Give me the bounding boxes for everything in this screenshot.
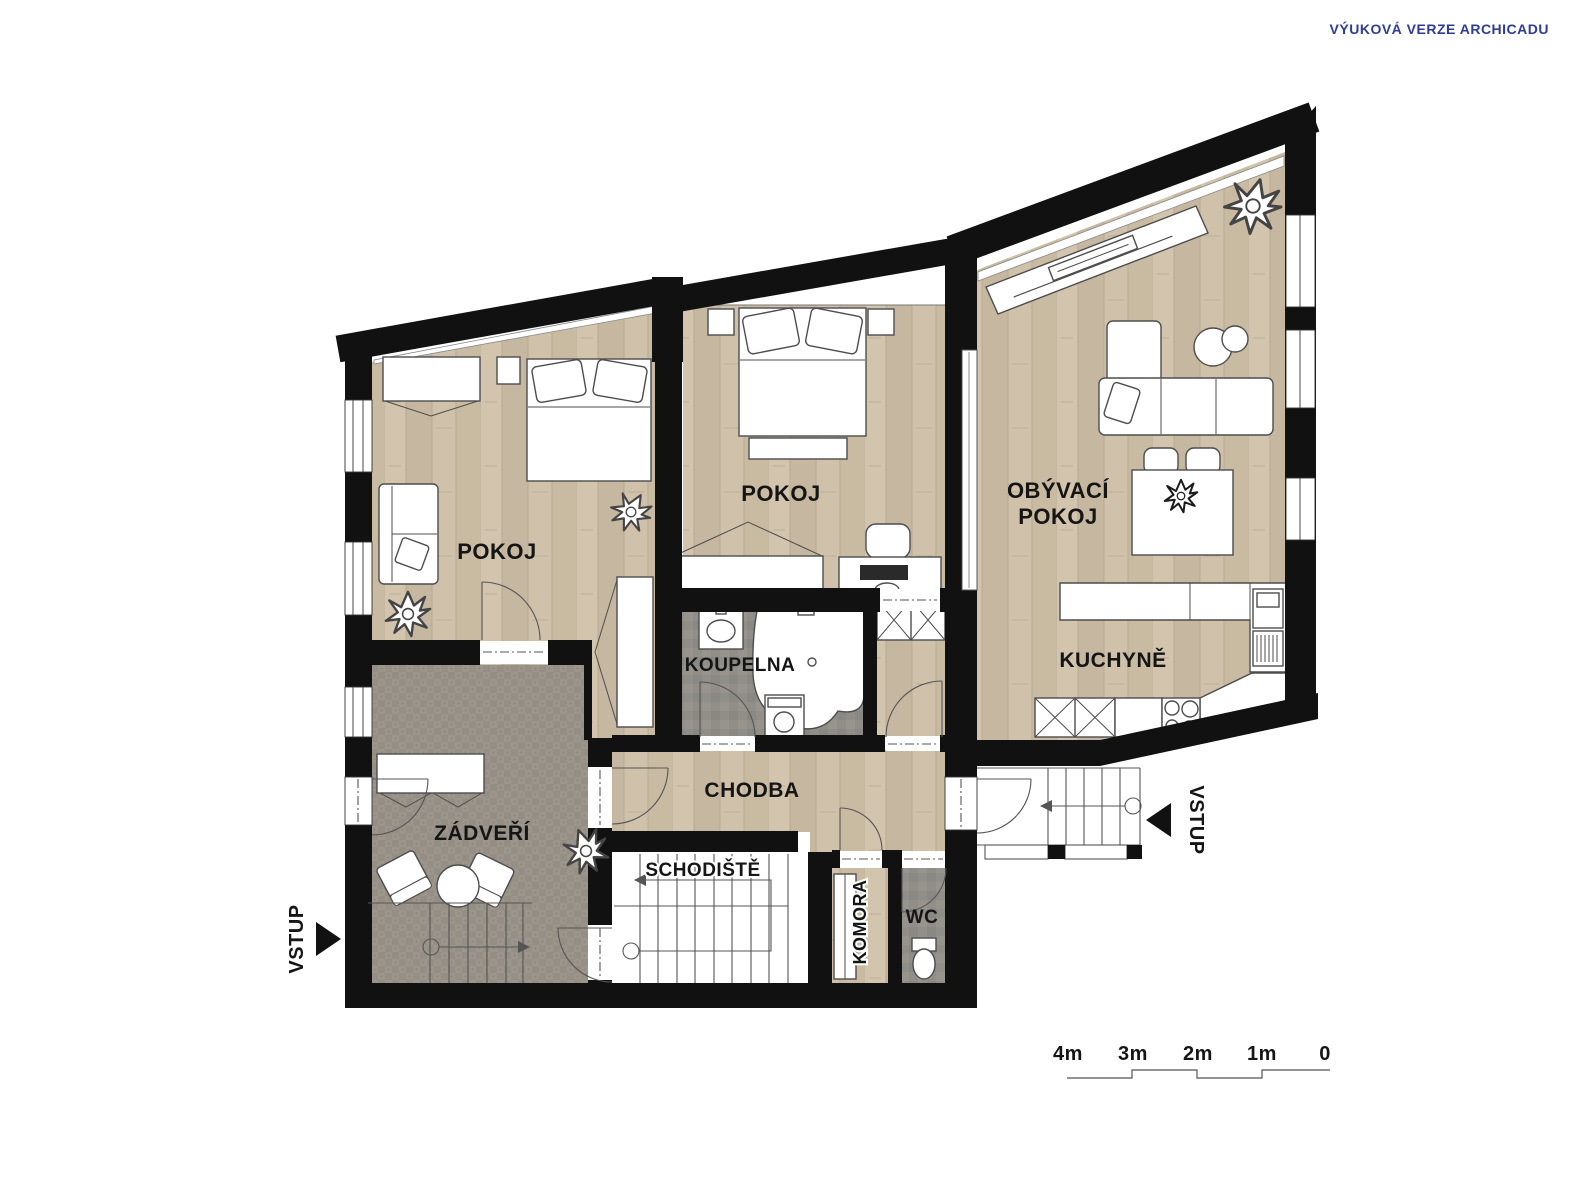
bed-double xyxy=(527,359,651,481)
window xyxy=(345,687,372,737)
label-obyvaci-line1: OBÝVACÍ xyxy=(1007,478,1109,503)
entrance-left: VSTUP xyxy=(286,904,341,973)
label-pokoj-middle: POKOJ xyxy=(741,481,821,506)
staircase-exterior-right xyxy=(977,768,1142,859)
scale-bar: 4m 3m 2m 1m 0 xyxy=(1053,1043,1331,1078)
window xyxy=(1286,215,1315,307)
entrance-right-label: VSTUP xyxy=(1185,785,1207,854)
scale-bar-line xyxy=(1067,1070,1330,1078)
floorplan-canvas: POKOJ POKOJ OBÝVACÍ POKOJ KUCHYNĚ KOUPEL… xyxy=(0,0,1579,1200)
app-watermark: VÝUKOVÁ VERZE ARCHICADU xyxy=(1330,20,1549,37)
label-komora: KOMORA xyxy=(850,880,870,965)
window xyxy=(1286,330,1315,408)
label-obyvaci-line2: POKOJ xyxy=(1018,504,1098,529)
bench xyxy=(749,438,847,459)
scale-label-4m: 4m xyxy=(1053,1043,1083,1065)
nightstand xyxy=(868,309,894,335)
label-kuchyne: KUCHYNĚ xyxy=(1059,648,1166,672)
scale-label-1m: 1m xyxy=(1247,1043,1277,1065)
coffee-table-small xyxy=(1222,326,1248,352)
label-wc: WC xyxy=(906,907,939,928)
half-wall-strip xyxy=(962,350,977,590)
window xyxy=(345,542,372,615)
label-pokoj-left: POKOJ xyxy=(457,539,537,564)
entrance-right: VSTUP xyxy=(1146,785,1207,854)
scale-label-2m: 2m xyxy=(1183,1043,1213,1065)
entrance-left-label: VSTUP xyxy=(286,904,308,973)
label-zadveri: ZÁDVEŘÍ xyxy=(434,821,530,845)
scale-label-0: 0 xyxy=(1319,1043,1331,1065)
entrance-right-arrow-icon xyxy=(1146,803,1171,837)
nightstand xyxy=(708,309,734,335)
label-koupelna: KOUPELNA xyxy=(685,655,796,676)
toilet xyxy=(912,938,936,979)
round-table xyxy=(437,865,479,907)
bed-double xyxy=(739,307,866,436)
washing-machine xyxy=(765,695,804,737)
entrance-left-arrow-icon xyxy=(316,922,341,956)
scale-label-3m: 3m xyxy=(1118,1043,1148,1065)
label-schodiste: SCHODIŠTĚ xyxy=(645,859,760,881)
label-chodba: CHODBA xyxy=(704,779,799,802)
nightstand xyxy=(497,357,520,384)
window xyxy=(1286,478,1315,540)
floorplan-drawing: POKOJ POKOJ OBÝVACÍ POKOJ KUCHYNĚ KOUPEL… xyxy=(0,0,1579,1200)
sofa xyxy=(379,484,438,584)
window xyxy=(345,400,372,472)
